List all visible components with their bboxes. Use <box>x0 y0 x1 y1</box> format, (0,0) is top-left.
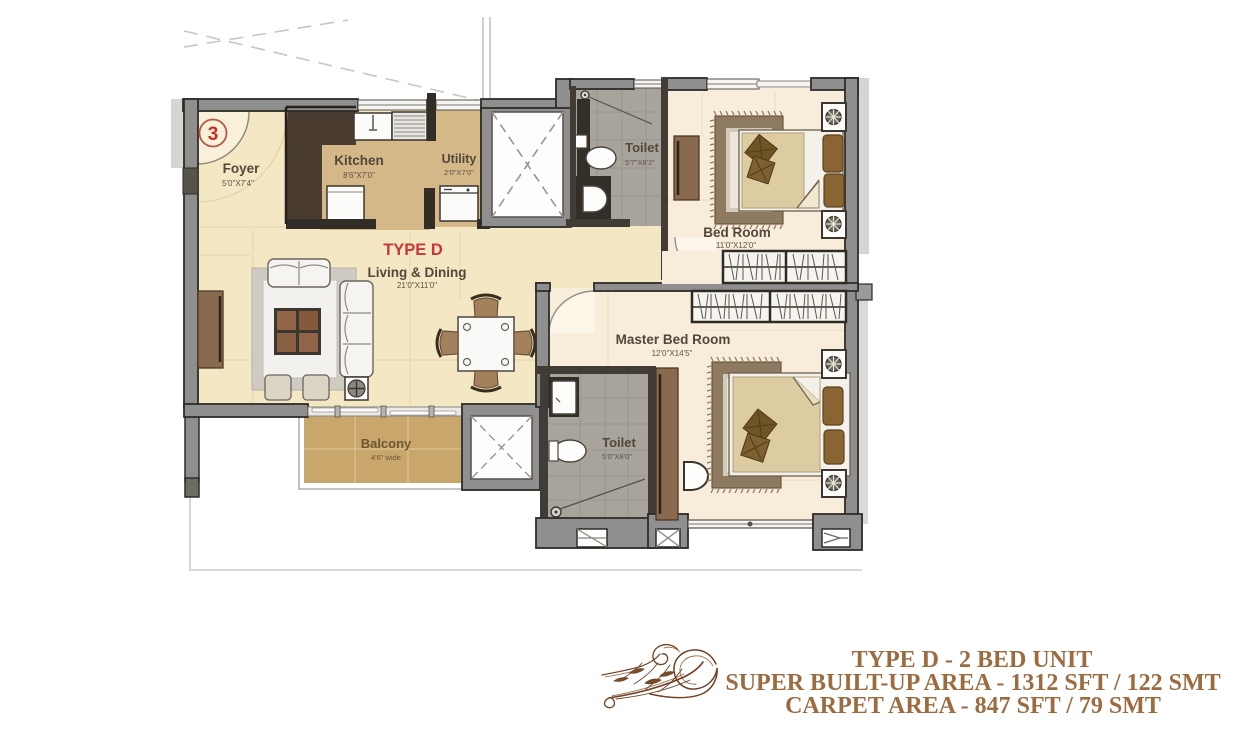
svg-text:8'6"X7'0": 8'6"X7'0" <box>343 171 375 180</box>
svg-text:4'6" wide: 4'6" wide <box>371 453 401 462</box>
svg-text:Toilet: Toilet <box>602 435 636 450</box>
svg-text:21'0"X11'0": 21'0"X11'0" <box>397 281 437 290</box>
svg-text:Kitchen: Kitchen <box>334 153 384 168</box>
svg-text:2'0"X7'0": 2'0"X7'0" <box>444 168 474 177</box>
svg-text:Bed Room: Bed Room <box>703 225 771 240</box>
svg-text:CARPET AREA - 847 SFT / 79 SMT: CARPET AREA - 847 SFT / 79 SMT <box>785 693 1161 719</box>
svg-text:5'0"X8'0": 5'0"X8'0" <box>602 452 632 461</box>
svg-text:Living & Dining: Living & Dining <box>368 265 467 280</box>
svg-text:11'0"X12'0": 11'0"X12'0" <box>716 241 756 250</box>
svg-text:5'7"X8'2": 5'7"X8'2" <box>625 158 655 167</box>
svg-text:TYPE D: TYPE D <box>383 241 443 259</box>
svg-text:Balcony: Balcony <box>361 436 412 451</box>
svg-text:3: 3 <box>208 124 219 145</box>
svg-text:12'0"X14'5": 12'0"X14'5" <box>652 349 693 358</box>
svg-text:Utility: Utility <box>442 152 477 166</box>
svg-text:Master Bed Room: Master Bed Room <box>616 332 731 347</box>
svg-text:Foyer: Foyer <box>223 161 261 176</box>
svg-text:Toilet: Toilet <box>625 140 659 155</box>
svg-text:5'0"X7'4": 5'0"X7'4" <box>222 179 254 188</box>
